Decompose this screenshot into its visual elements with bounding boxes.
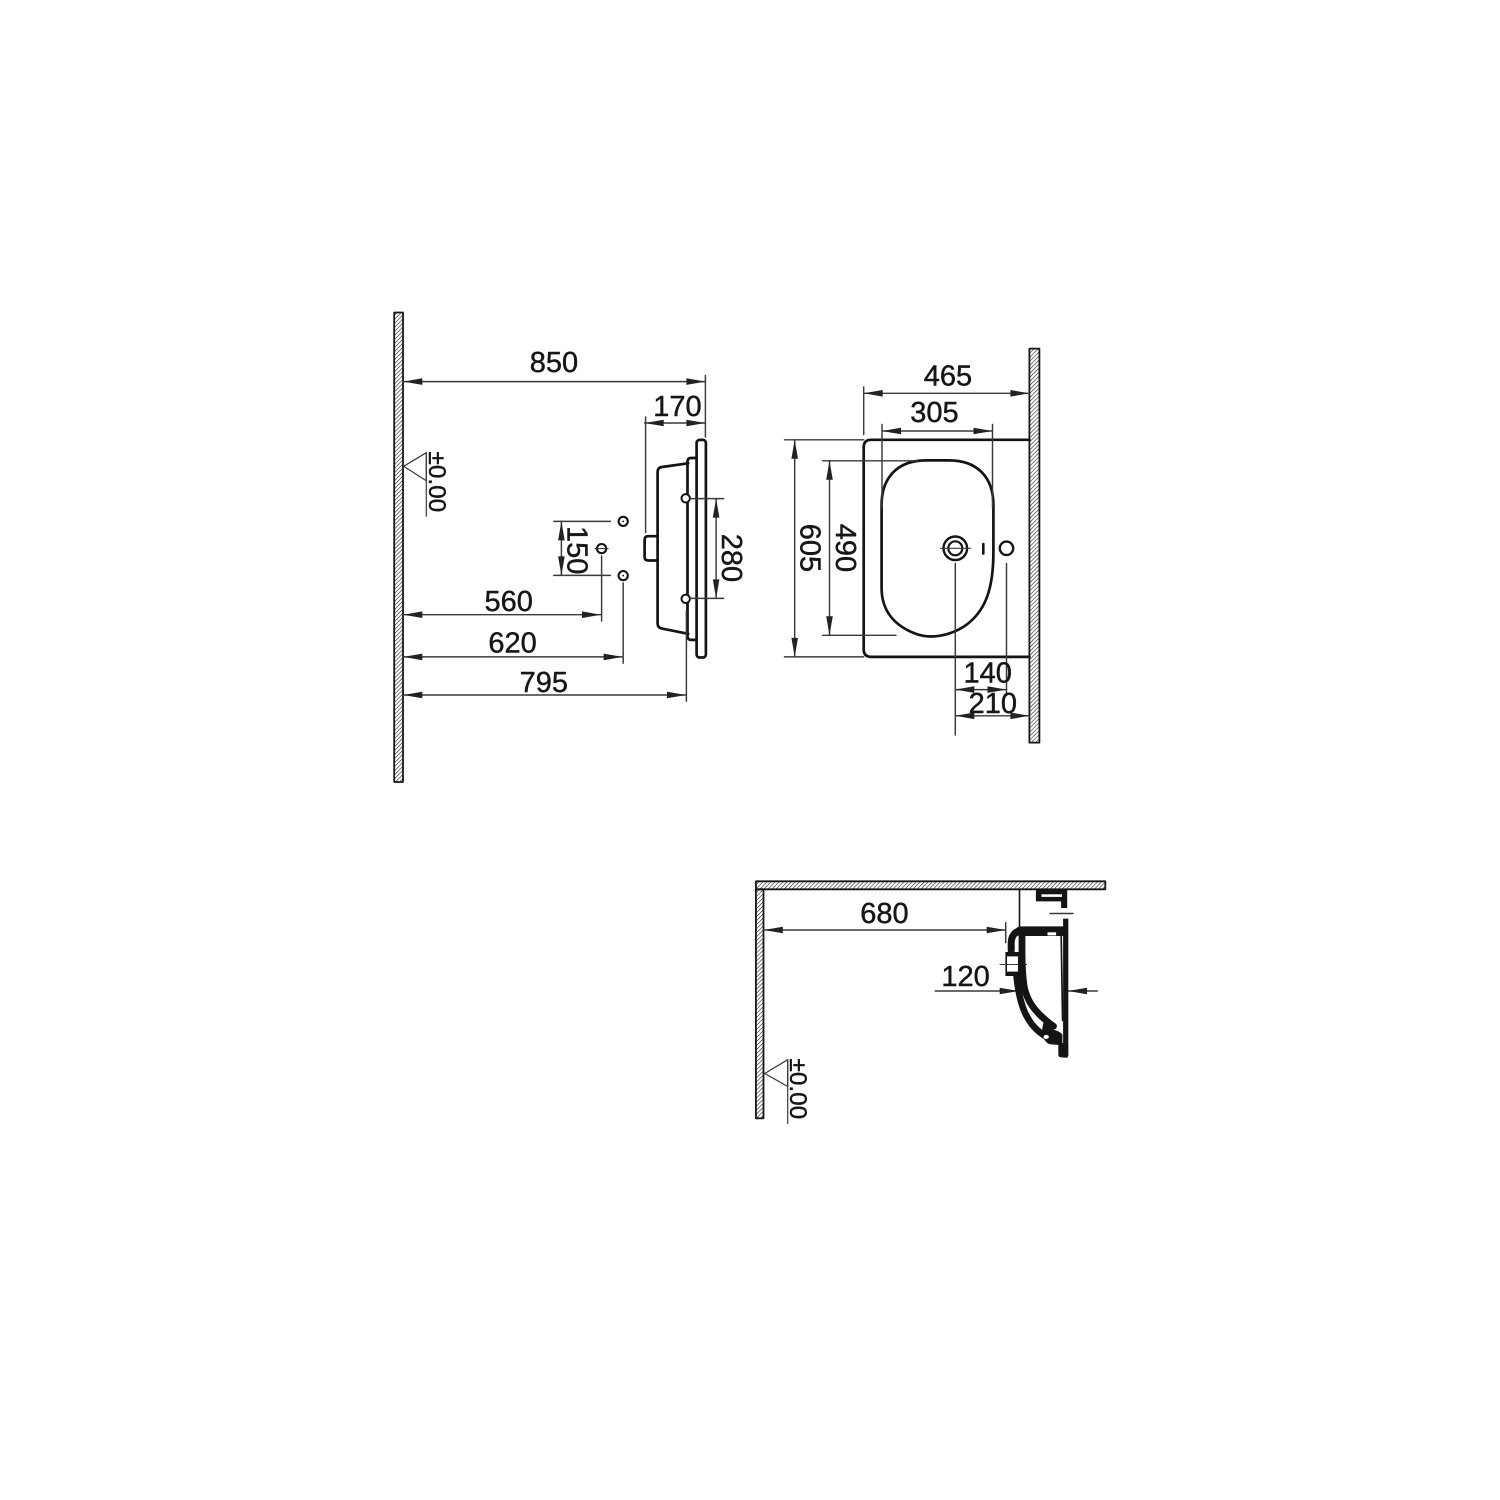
svg-text:465: 465 xyxy=(924,361,972,393)
svg-text:305: 305 xyxy=(910,397,958,429)
svg-text:210: 210 xyxy=(969,688,1017,720)
svg-text:680: 680 xyxy=(860,898,908,930)
svg-text:±0.00: ±0.00 xyxy=(423,452,450,513)
svg-text:150: 150 xyxy=(561,526,593,574)
svg-text:795: 795 xyxy=(520,667,568,699)
svg-text:±0.00: ±0.00 xyxy=(784,1059,811,1120)
svg-text:605: 605 xyxy=(793,524,825,572)
svg-text:560: 560 xyxy=(485,586,533,618)
svg-text:120: 120 xyxy=(941,961,989,993)
svg-text:490: 490 xyxy=(829,524,861,572)
svg-text:850: 850 xyxy=(530,347,578,379)
svg-text:620: 620 xyxy=(488,627,536,659)
svg-text:280: 280 xyxy=(715,534,747,582)
svg-text:140: 140 xyxy=(964,657,1012,689)
svg-text:170: 170 xyxy=(653,391,701,423)
